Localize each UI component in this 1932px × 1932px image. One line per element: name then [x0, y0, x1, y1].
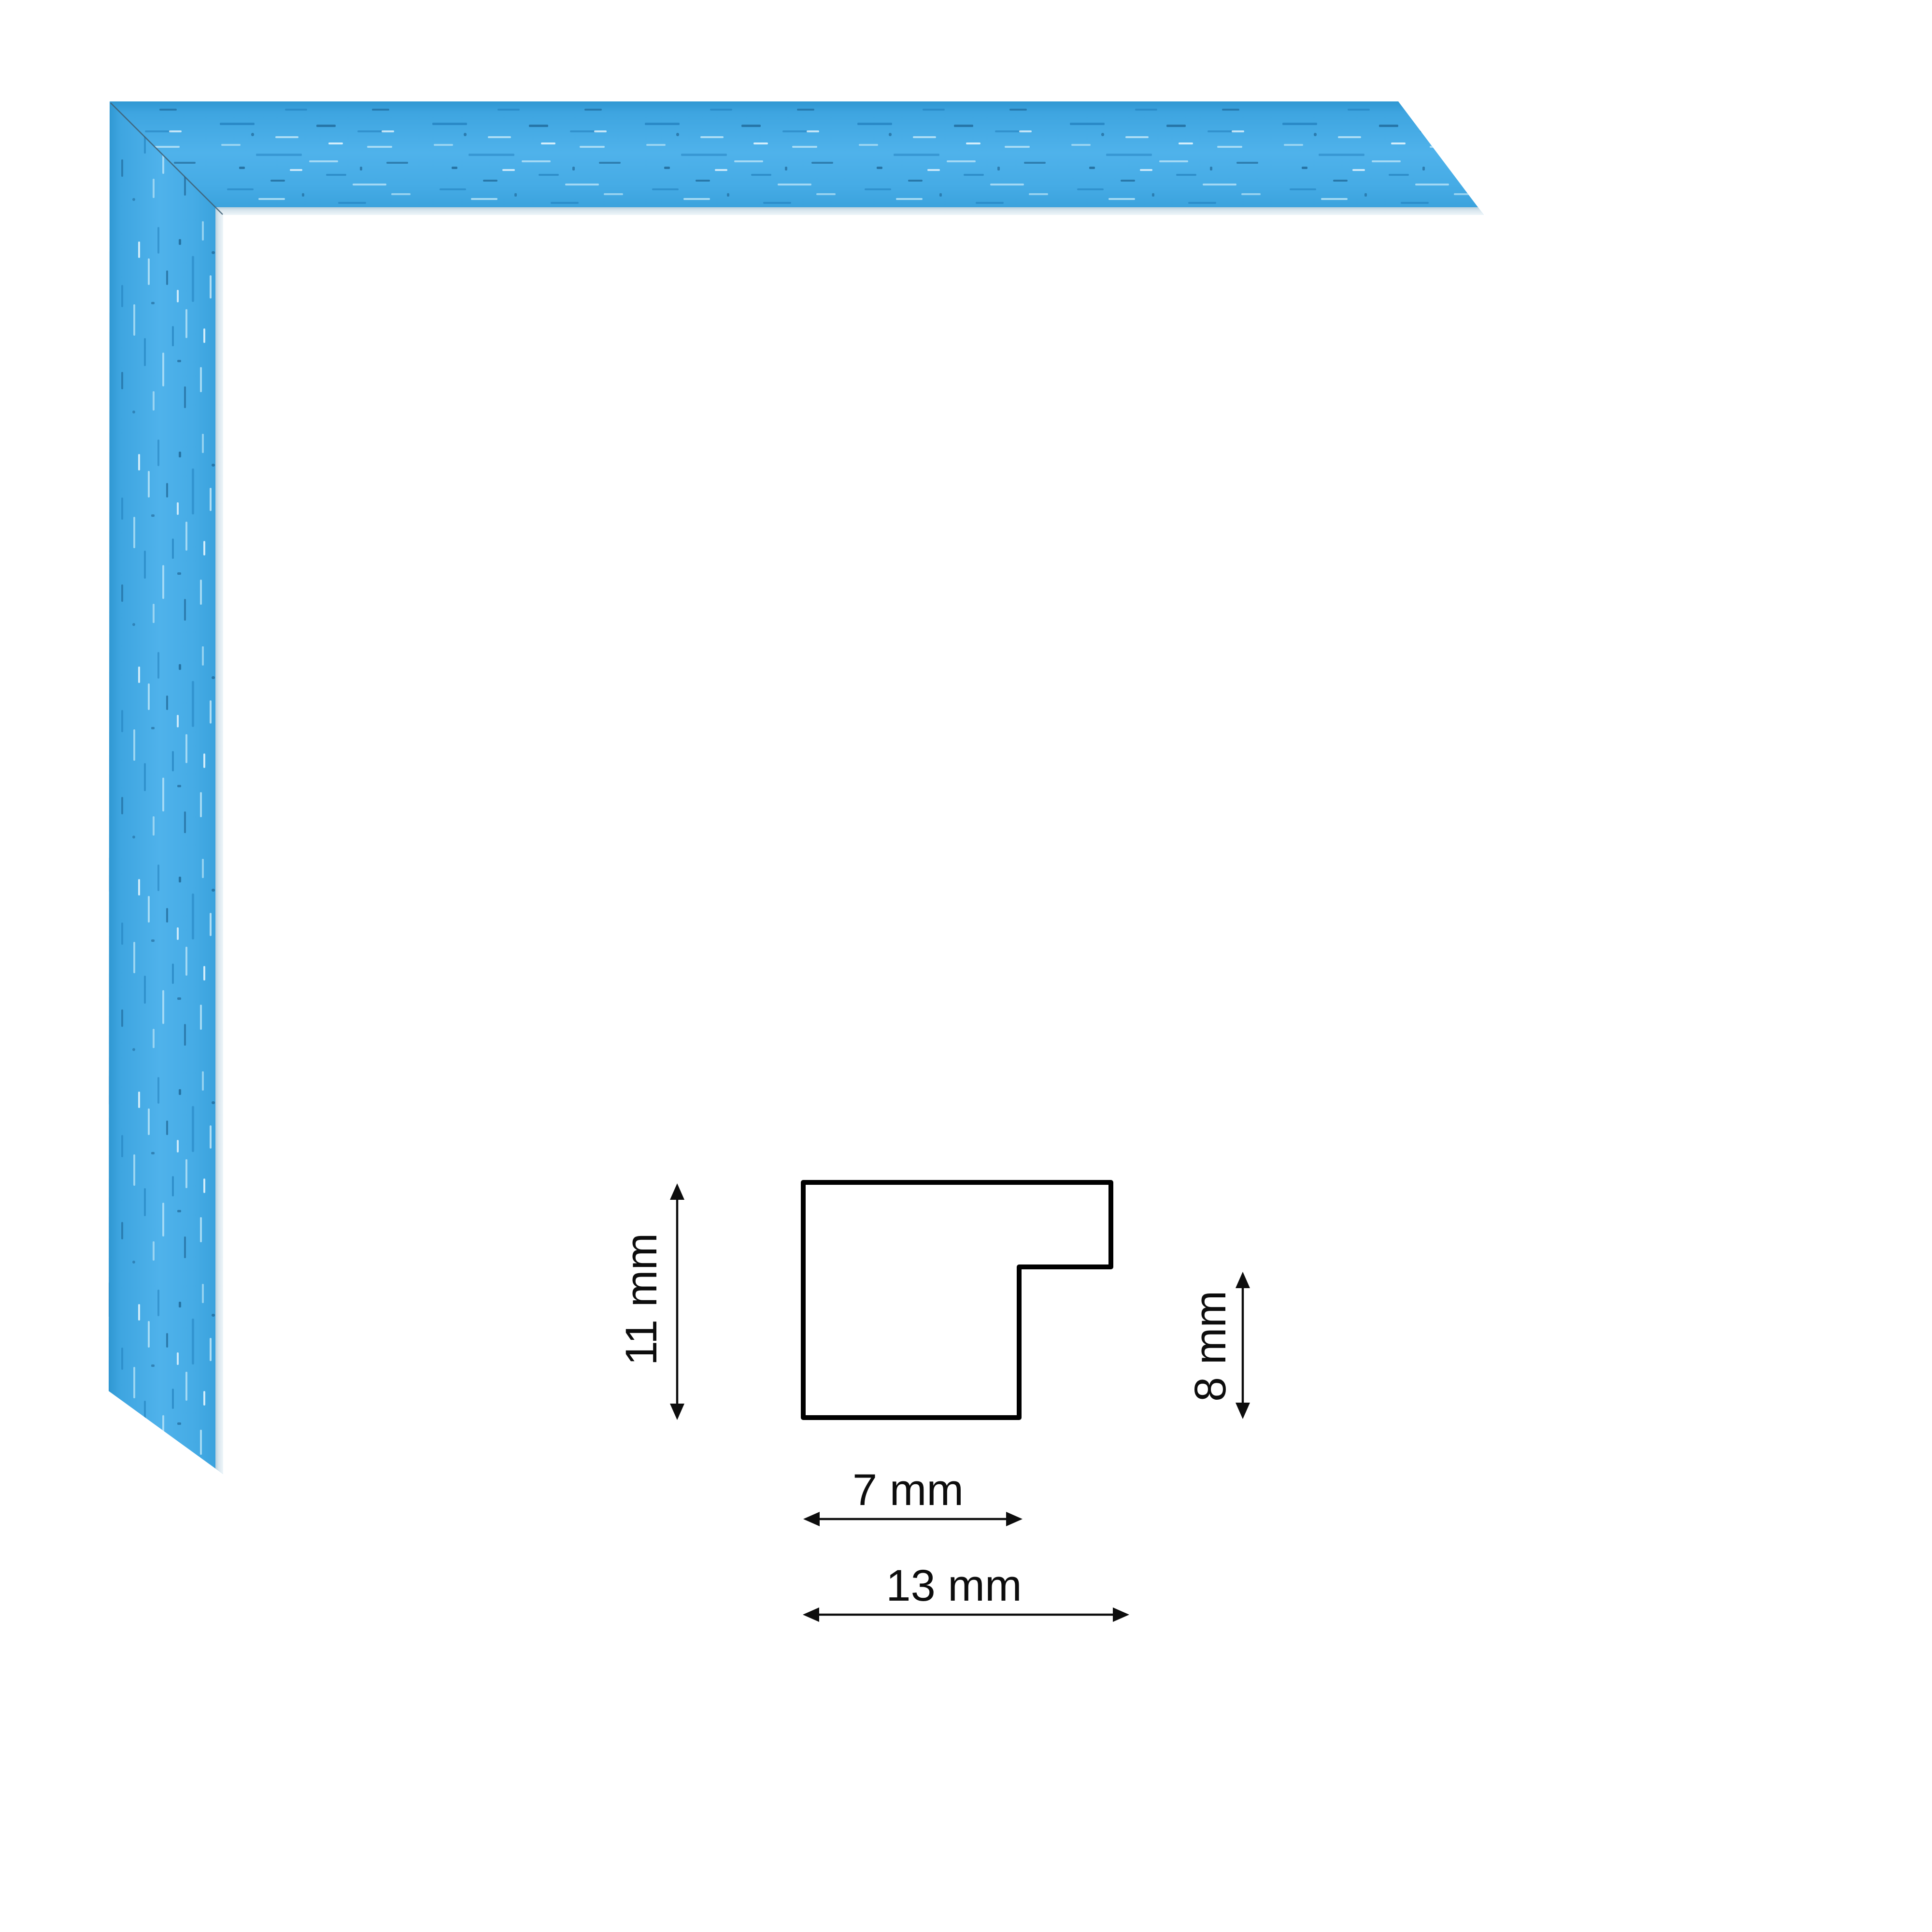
product-image-canvas: 11 mm 8 mm 7 mm 13 mm — [0, 0, 1932, 1932]
profile-diagram — [670, 1182, 1250, 1622]
arrow-down-icon — [670, 1404, 684, 1420]
arrow-right-icon — [1006, 1512, 1023, 1526]
arrow-up-icon — [1236, 1272, 1250, 1288]
arrow-left-icon — [803, 1512, 820, 1526]
inner-lip-highlight-horizontal — [110, 207, 1484, 215]
dim-label-rebate-height: 8 mm — [1188, 1291, 1233, 1402]
dim-label-overall-width: 13 mm — [886, 1563, 1022, 1608]
dim-label-face-width: 7 mm — [852, 1468, 964, 1512]
dimension-arrow-height — [670, 1183, 684, 1420]
frame-corner-sample — [109, 101, 1484, 1478]
dimension-arrow-rebate-height — [1236, 1272, 1250, 1419]
frame-illustration — [0, 0, 1932, 1932]
arrow-up-icon — [670, 1183, 684, 1200]
frame-vertical-rail — [109, 101, 223, 1478]
frame-horizontal-rail — [110, 101, 1484, 215]
arrow-right-icon — [1113, 1607, 1129, 1622]
inner-lip-highlight-vertical — [215, 145, 223, 1478]
dim-label-height: 11 mm — [619, 1233, 664, 1365]
arrow-down-icon — [1236, 1403, 1250, 1419]
arrow-left-icon — [803, 1607, 819, 1622]
profile-outline — [803, 1182, 1111, 1418]
